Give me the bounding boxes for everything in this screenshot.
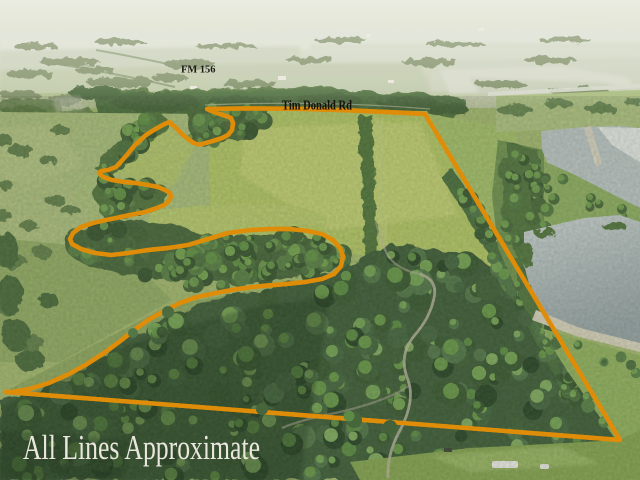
- svg-text:FM 156: FM 156: [181, 64, 216, 76]
- svg-text:All Lines Approximate: All Lines Approximate: [23, 428, 260, 467]
- svg-text:Tim Donald Rd: Tim Donald Rd: [282, 99, 352, 114]
